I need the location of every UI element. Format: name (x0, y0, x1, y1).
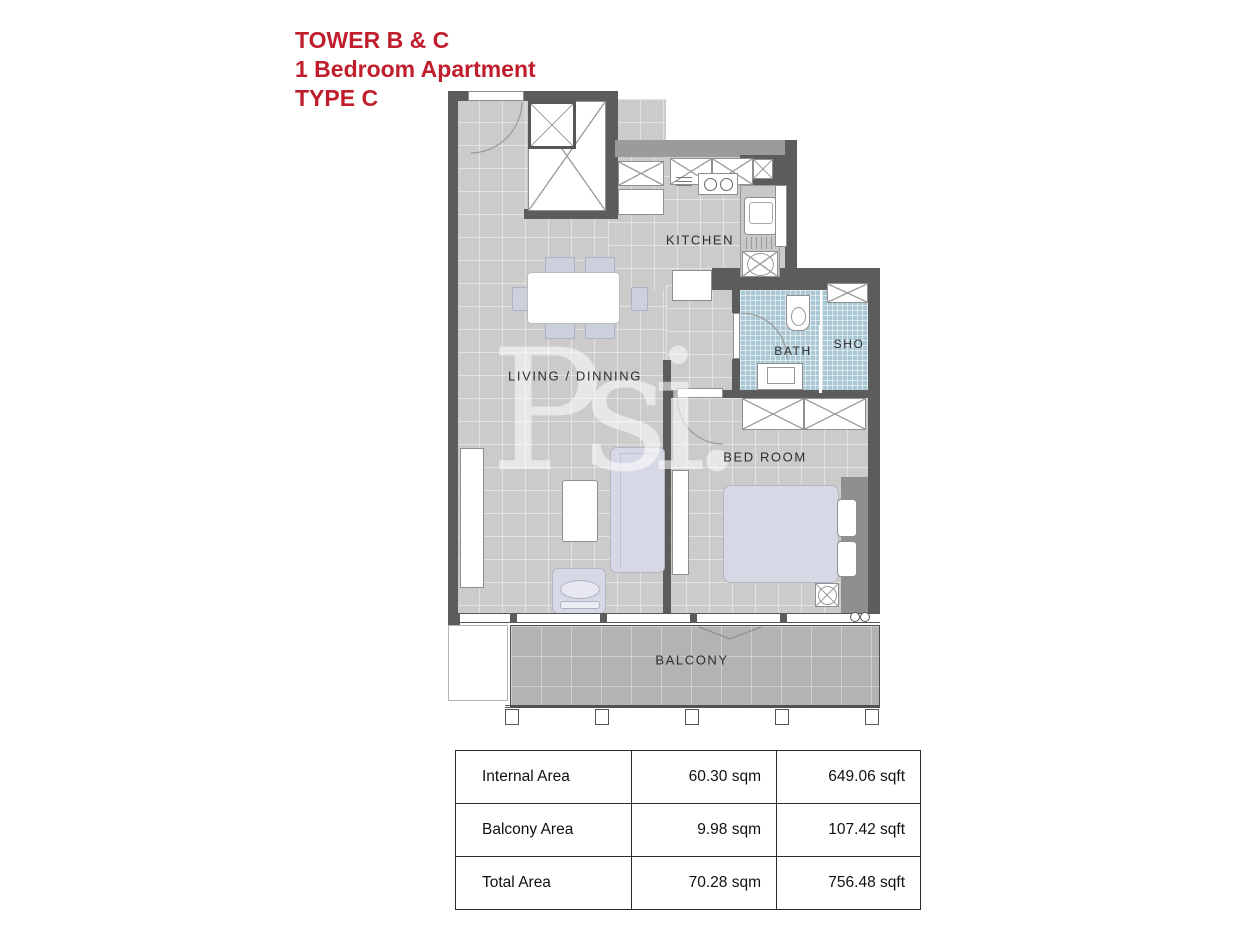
total-area-sqft: 756.48 sqft (777, 857, 921, 910)
fridge (672, 270, 712, 301)
railing-post (595, 709, 609, 725)
internal-area-sqft: 649.06 sqft (777, 751, 921, 804)
burner-right (720, 178, 733, 191)
bedroom-door-leaf (677, 388, 723, 398)
table-row-total-area: Total Area 70.28 sqm 756.48 sqft (456, 857, 921, 910)
entry-door-arc (470, 101, 523, 154)
bedroom-label: BED ROOM (723, 450, 807, 465)
entry-door-leaf (468, 91, 524, 101)
balcony-area-sqm: 9.98 sqm (632, 804, 777, 857)
total-area-sqm: 70.28 sqm (632, 857, 777, 910)
bath-sink (767, 367, 795, 384)
total-area-label: Total Area (456, 857, 632, 910)
hall-cabinet (618, 189, 664, 215)
dining-chair (545, 322, 575, 339)
bottom-left-wall-stub (448, 613, 460, 625)
kitchen-cabinet-small (753, 159, 773, 179)
table-row-balcony-area: Balcony Area 9.98 sqm 107.42 sqft (456, 804, 921, 857)
shower-shelf (827, 283, 868, 303)
kitchen-rack (676, 177, 692, 186)
sofa-cushion-line (620, 453, 657, 568)
burner-left (704, 178, 717, 191)
pillow-top (837, 499, 857, 537)
bath-label: BATH (774, 344, 812, 358)
dining-chair (631, 287, 648, 311)
living-dining-label: LIVING / DINNING (508, 369, 642, 384)
balcony-area-label: Balcony Area (456, 804, 632, 857)
hall-cabinet-x (618, 161, 664, 186)
dining-table (527, 272, 620, 324)
railing-post (775, 709, 789, 725)
window-mullion (510, 613, 517, 623)
floor-plan: Psi. KITCHEN BATH SHO LIVING / DINNING B… (448, 85, 880, 735)
bedside-table-circle (818, 586, 837, 605)
railing-post (865, 709, 879, 725)
bedroom-door-arc (677, 398, 724, 445)
wardrobe-right (804, 398, 866, 430)
shaft-top-wall (524, 91, 618, 101)
shaft-inner-box (528, 101, 576, 149)
bed (723, 485, 839, 583)
balcony-chevron (698, 626, 762, 640)
railing (505, 705, 880, 708)
window-mullion (600, 613, 607, 623)
area-table: Internal Area 60.30 sqm 649.06 sqft Balc… (455, 750, 921, 910)
door-roller (860, 612, 870, 622)
door-roller (850, 612, 860, 622)
bath-wall-lower (732, 359, 740, 390)
shower-glass (819, 325, 822, 393)
bath-wall-upper (732, 290, 740, 313)
armchair-base (560, 601, 600, 609)
right-wall (868, 280, 880, 623)
title-tower: TOWER B & C (295, 26, 536, 55)
balcony-window-band (458, 613, 880, 623)
table-row-internal-area: Internal Area 60.30 sqm 649.06 sqft (456, 751, 921, 804)
tv-cabinet (460, 448, 484, 588)
bedroom-closet (672, 470, 689, 575)
internal-area-sqm: 60.30 sqm (632, 751, 777, 804)
dining-chair (585, 322, 615, 339)
page: { "title": { "line1": "TOWER B & C", "li… (0, 0, 1244, 933)
railing-post (505, 709, 519, 725)
kitchen-label: KITCHEN (666, 233, 734, 248)
window-mullion (690, 613, 697, 623)
left-wall (448, 99, 458, 613)
balcony-ledge (448, 625, 508, 701)
shower-label: SHO (834, 337, 865, 351)
balcony-label: BALCONY (655, 653, 728, 668)
balcony-area-sqft: 107.42 sqft (777, 804, 921, 857)
kitchen-unit-circle (747, 253, 774, 276)
drain-board (746, 237, 774, 249)
wardrobe-left (742, 398, 804, 430)
bath-door-leaf (733, 313, 740, 359)
pillow-bottom (837, 541, 857, 577)
armchair-seat (560, 580, 600, 599)
toilet-bowl (791, 307, 806, 326)
hall-floor (666, 285, 740, 398)
coffee-table (562, 480, 598, 542)
kitchen-door-panel (775, 185, 787, 247)
title-apartment: 1 Bedroom Apartment (295, 55, 536, 84)
window-mullion (780, 613, 787, 623)
internal-area-label: Internal Area (456, 751, 632, 804)
kitchen-sink-basin (749, 202, 773, 224)
railing-post (685, 709, 699, 725)
